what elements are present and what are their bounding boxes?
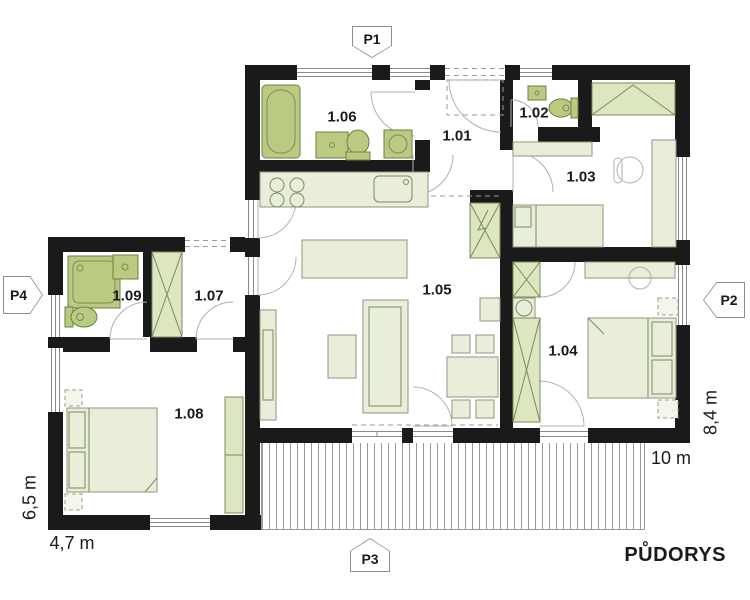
marker-p2: P2 (703, 282, 745, 318)
kitchen-counter (260, 172, 428, 207)
washbasin (528, 86, 546, 100)
washbasin (113, 255, 138, 279)
kitchen-island (302, 240, 407, 278)
wardrobe (592, 83, 675, 115)
marker-p3-label: P3 (361, 543, 378, 567)
marker-p4: P4 (3, 276, 43, 314)
washbasin (316, 132, 348, 158)
double-bed (588, 318, 676, 398)
shelf (513, 142, 592, 156)
toilet (347, 130, 369, 154)
double-bed (67, 408, 157, 492)
chair (480, 298, 500, 321)
room-label-106: 1.06 (327, 109, 356, 126)
desk (585, 262, 675, 278)
room-label-102: 1.02 (519, 105, 548, 122)
dimension-main-height: 8,4 m (701, 378, 722, 448)
coffee-table (328, 335, 356, 378)
room-label-109: 1.09 (112, 288, 141, 305)
room-label-101: 1.01 (442, 128, 471, 145)
bedroom-104-furniture (513, 262, 678, 422)
room-label-103: 1.03 (566, 169, 595, 186)
tv-bench (260, 310, 276, 420)
dimension-main-width: 10 m (646, 448, 696, 469)
dining-table (447, 357, 498, 397)
chair (452, 400, 470, 418)
chair (452, 335, 470, 353)
bedroom-108-furniture (65, 390, 243, 513)
bathtub (262, 85, 300, 158)
room-label-108: 1.08 (174, 406, 203, 423)
desk (652, 140, 676, 247)
office-chair (617, 157, 643, 183)
closet-107-furniture (152, 252, 182, 337)
nightstand (658, 298, 678, 315)
living-room-105-furniture (260, 203, 500, 420)
marker-p1: P1 (352, 26, 392, 58)
washing-machine (384, 130, 412, 158)
nightstand (658, 400, 678, 418)
room-label-105: 1.05 (422, 282, 451, 299)
floor-plan-canvas: 1.01 1.02 1.03 1.04 1.05 1.06 1.07 1.08 … (0, 0, 750, 600)
marker-p2-label: P2 (710, 292, 737, 308)
marker-p3: P3 (350, 538, 390, 572)
plan-title: PŮDORYS (608, 544, 726, 567)
nightstand (65, 494, 82, 510)
room-label-107: 1.07 (194, 288, 223, 305)
room-label-104: 1.04 (548, 343, 577, 360)
chair (476, 335, 494, 353)
nightstand (65, 390, 82, 406)
single-bed (513, 205, 603, 247)
marker-p4-label: P4 (10, 287, 36, 303)
dimension-left-wing-height: 6,5 m (20, 462, 41, 534)
dimension-left-wing-width: 4,7 m (48, 533, 96, 554)
marker-p1-label: P1 (363, 31, 380, 54)
chair (476, 400, 494, 418)
